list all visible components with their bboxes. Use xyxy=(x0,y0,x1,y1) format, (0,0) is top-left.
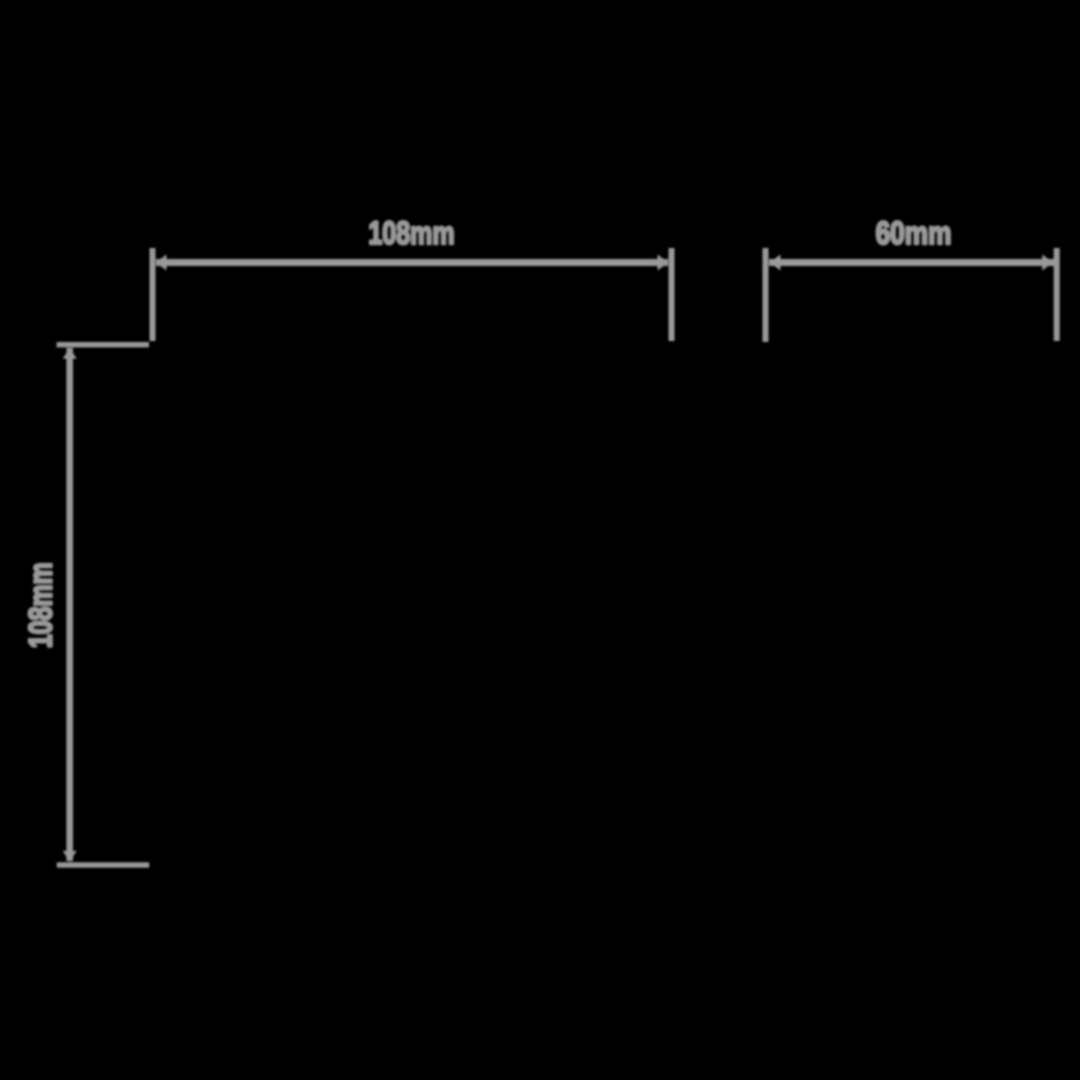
svg-text:60mm: 60mm xyxy=(876,215,952,251)
svg-text:108mm: 108mm xyxy=(22,562,58,648)
svg-text:108mm: 108mm xyxy=(368,215,454,251)
